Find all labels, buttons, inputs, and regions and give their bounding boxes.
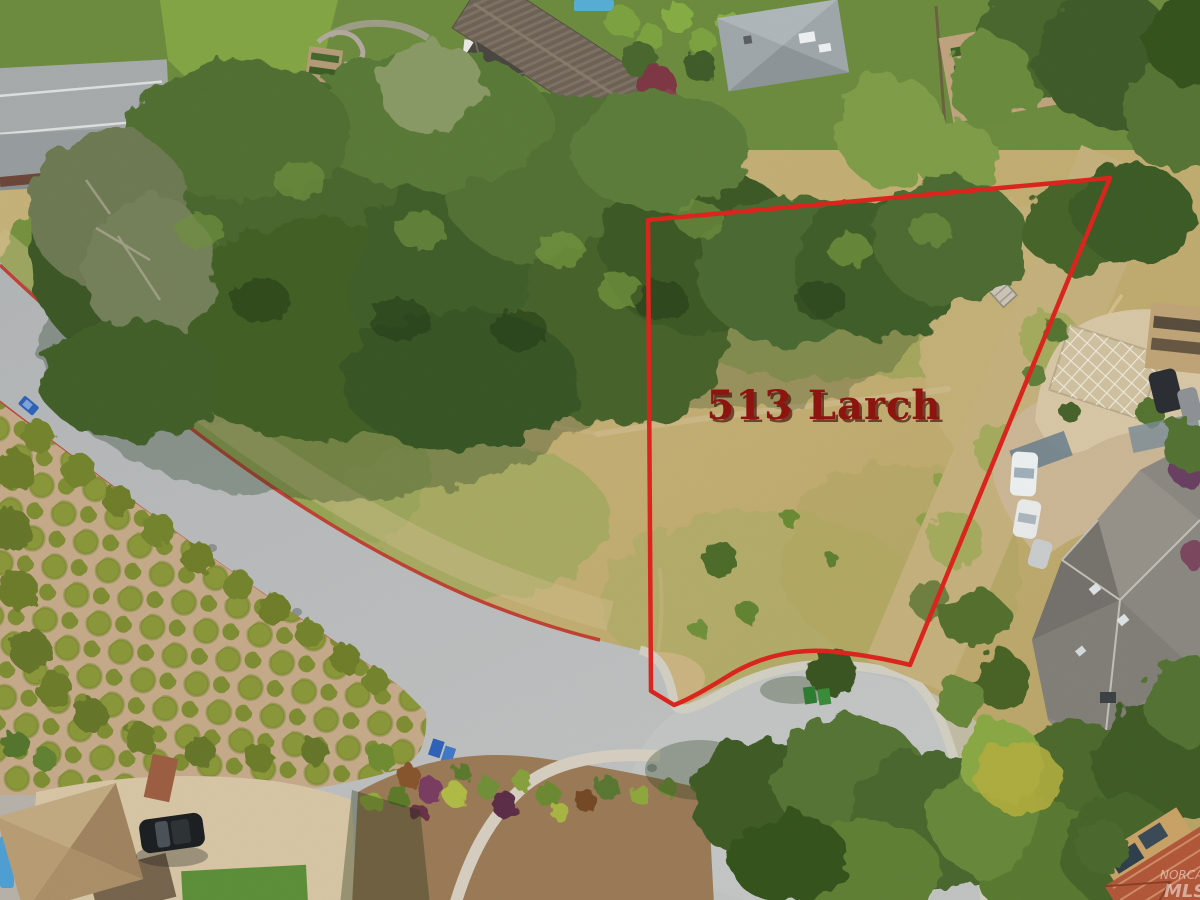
photo-frame: 513 Larch 513 Larch NORCAL MLS: [0, 0, 1200, 900]
mls-watermark: NORCAL MLS: [1160, 868, 1200, 900]
watermark-line2: MLS: [1164, 881, 1200, 900]
aerial-photo: 513 Larch 513 Larch NORCAL MLS: [0, 0, 1200, 900]
property-label: 513 Larch: [707, 382, 942, 429]
photo-grain: [0, 0, 1200, 900]
watermark-line1: NORCAL: [1160, 868, 1200, 882]
